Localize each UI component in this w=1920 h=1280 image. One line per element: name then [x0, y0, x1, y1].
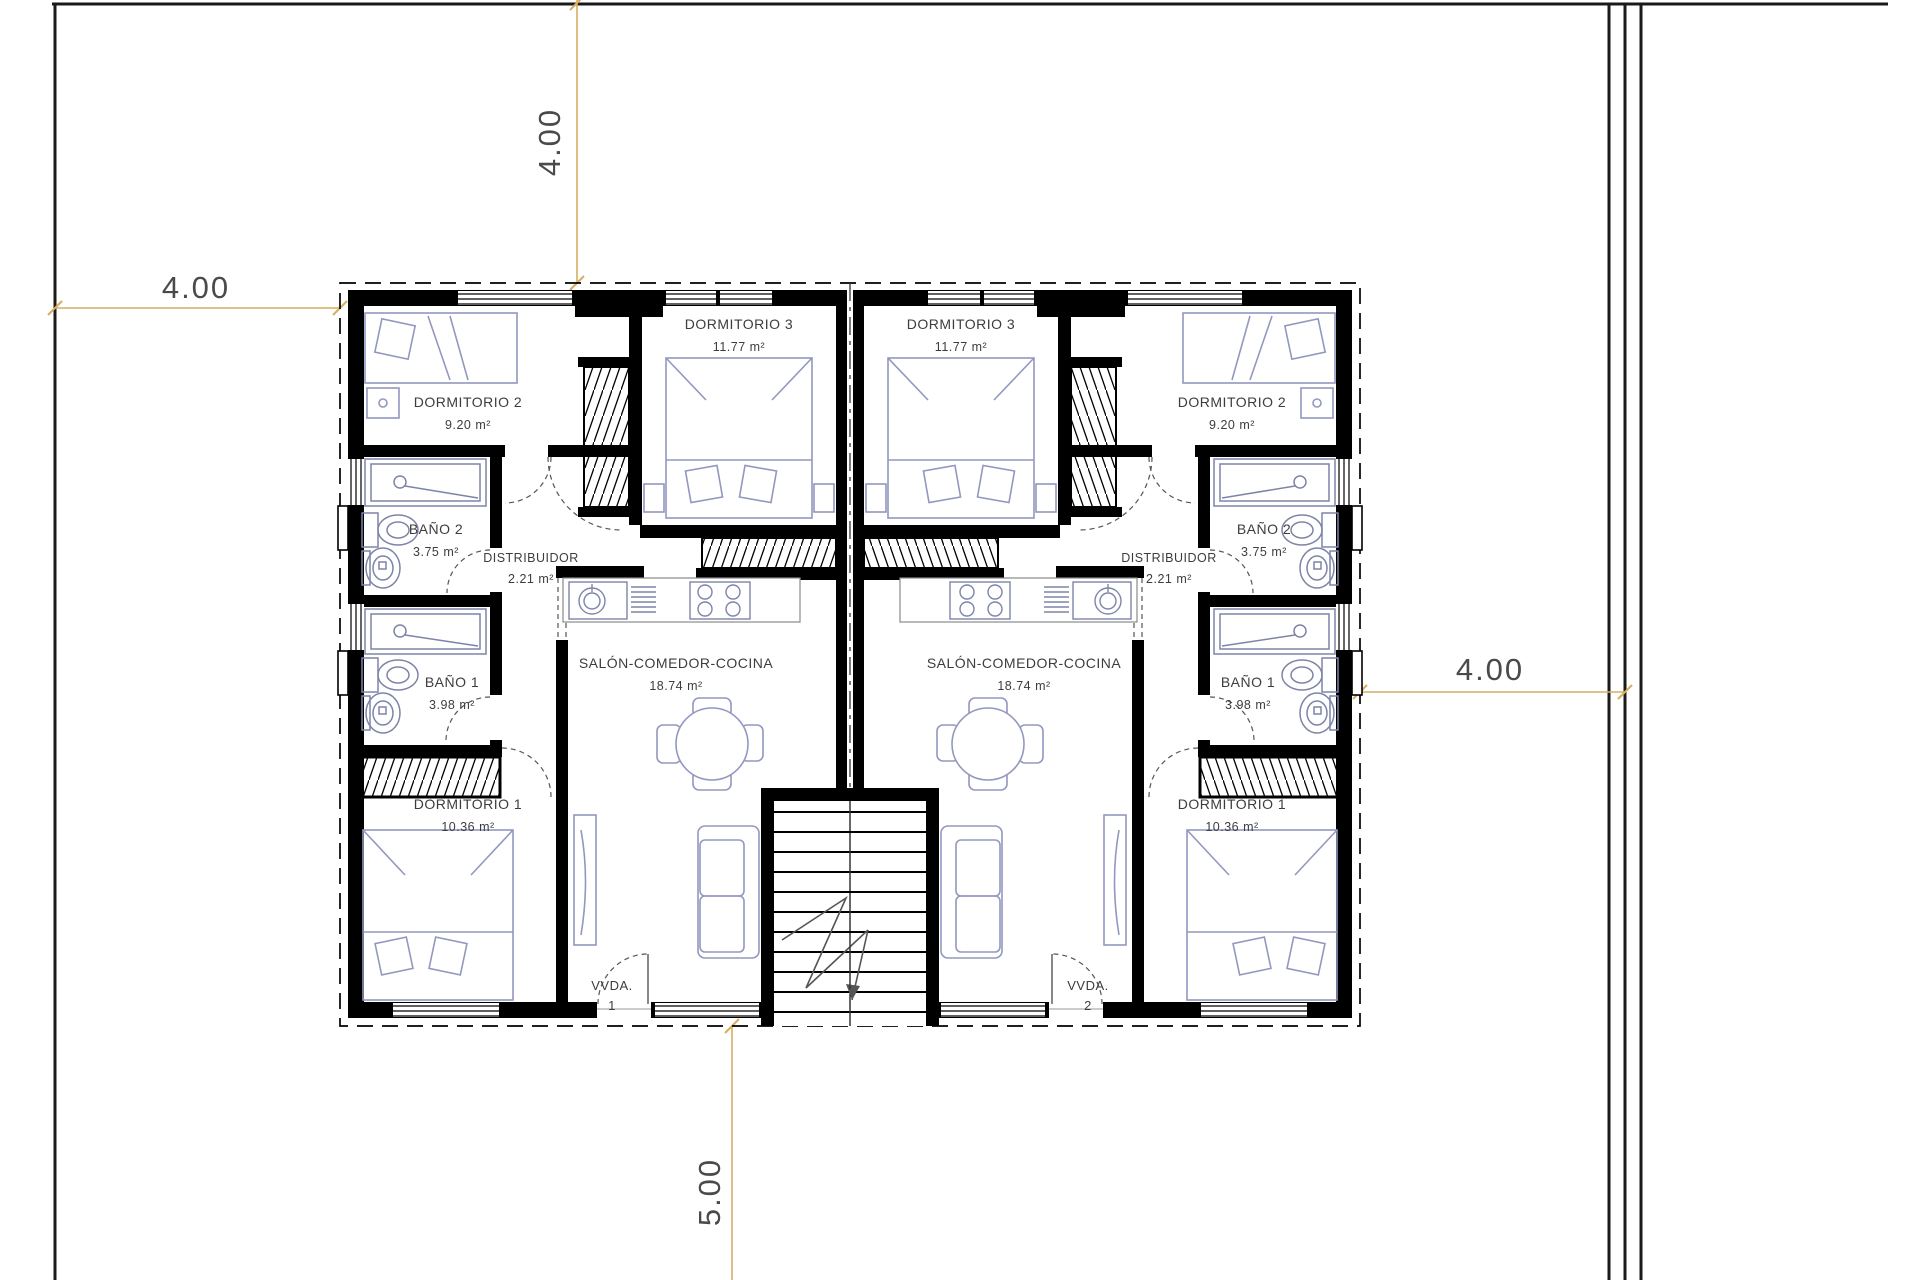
dimension-right-value: 4.00: [1456, 652, 1524, 687]
dimension-top: 4.00: [532, 0, 584, 290]
dorm2-left-label: DORMITORIO 2: [414, 394, 522, 410]
dorm1-left-area: 10.36 m²: [441, 820, 494, 834]
dorm2-right-label: DORMITORIO 2: [1178, 394, 1286, 410]
dorm3-right-label: DORMITORIO 3: [907, 316, 1015, 332]
vvda2-number: 2: [1084, 998, 1092, 1013]
salon-right-label: SALÓN-COMEDOR-COCINA: [927, 655, 1122, 671]
distribuidor-right-area: 2.21 m²: [1146, 572, 1192, 586]
bano2-right-label: BAÑO 2: [1237, 521, 1291, 537]
site-boundary: [52, 3, 1888, 1280]
vvda2-label: VVDA.: [1067, 978, 1109, 993]
bano1-left-label: BAÑO 1: [425, 674, 479, 690]
dimension-bottom-value: 5.00: [692, 1158, 727, 1226]
bano2-left-label: BAÑO 2: [409, 521, 463, 537]
distribuidor-left-label: DISTRIBUIDOR: [483, 551, 579, 565]
dorm3-left-label: DORMITORIO 3: [685, 316, 793, 332]
dimension-left: 4.00: [48, 270, 347, 315]
bano2-left-area: 3.75 m²: [413, 545, 459, 559]
dorm2-right-area: 9.20 m²: [1209, 418, 1255, 432]
floorplan-page: 4.00 4.00 4.00 5.00: [0, 0, 1920, 1280]
floorplan-canvas: 4.00 4.00 4.00 5.00: [0, 0, 1920, 1280]
dimension-bottom: 5.00: [692, 1019, 739, 1280]
dimension-right: 4.00: [1353, 652, 1632, 699]
salon-left-area: 18.74 m²: [649, 679, 702, 693]
dorm1-right-label: DORMITORIO 1: [1178, 796, 1286, 812]
vvda1-number: 1: [608, 998, 616, 1013]
dimension-top-value: 4.00: [532, 108, 567, 176]
dorm3-left-area: 11.77 m²: [713, 340, 765, 354]
salon-left-label: SALÓN-COMEDOR-COCINA: [579, 655, 774, 671]
bano1-right-label: BAÑO 1: [1221, 674, 1275, 690]
dorm1-right-area: 10.36 m²: [1205, 820, 1258, 834]
bano2-right-area: 3.75 m²: [1241, 545, 1287, 559]
bano1-left-area: 3.98 m²: [429, 698, 475, 712]
building: DORMITORIO 2 9.20 m² DORMITORIO 3 11.77 …: [338, 283, 1362, 1026]
salon-right-area: 18.74 m²: [997, 679, 1050, 693]
distribuidor-left-area: 2.21 m²: [508, 572, 554, 586]
bano1-right-area: 3.98 m²: [1225, 698, 1271, 712]
dimension-left-value: 4.00: [162, 270, 230, 305]
dorm2-left-area: 9.20 m²: [445, 418, 491, 432]
dorm3-right-area: 11.77 m²: [935, 340, 987, 354]
distribuidor-right-label: DISTRIBUIDOR: [1121, 551, 1217, 565]
dorm1-left-label: DORMITORIO 1: [414, 796, 522, 812]
vvda1-label: VVDA.: [591, 978, 633, 993]
